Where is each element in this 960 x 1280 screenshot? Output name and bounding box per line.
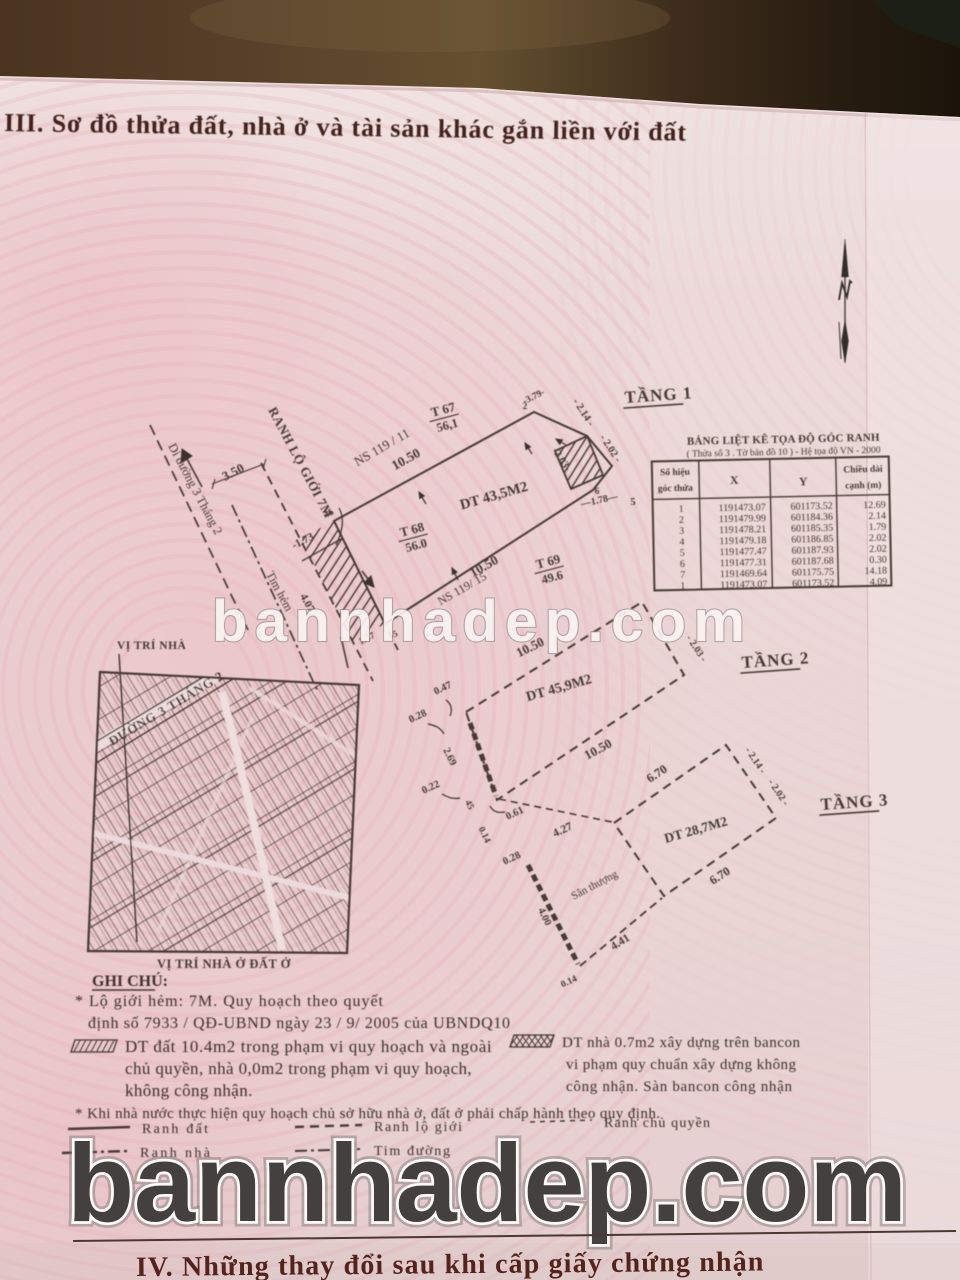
- svg-text:IV. Những thay đổi sau khi cấp: IV. Những thay đổi sau khi cấp giấy chứn…: [136, 1247, 764, 1280]
- svg-text:601173.52: 601173.52: [790, 501, 832, 513]
- svg-text:601175.75: 601175.75: [792, 567, 834, 579]
- svg-text:601185.35: 601185.35: [791, 523, 833, 535]
- svg-text:vi phạm quy chuẩn xây dựng kh: vi phạm quy chuẩn xây dựng không: [566, 1057, 797, 1073]
- svg-text:Chiều dài: Chiều dài: [843, 464, 883, 476]
- svg-text:DT nhà 0.7m2 xây dựng trên ban: DT nhà 0.7m2 xây dựng trên bancon: [562, 1035, 801, 1051]
- svg-text:cạnh (m): cạnh (m): [845, 480, 881, 492]
- svg-text:Y: Y: [799, 476, 808, 488]
- svg-text:4: 4: [679, 537, 684, 548]
- svg-text:601186.85: 601186.85: [791, 534, 833, 546]
- svg-text:2.02: 2.02: [869, 544, 887, 555]
- svg-text:VỊ TRÍ NHÀ: VỊ TRÍ NHÀ: [117, 638, 187, 652]
- svg-text:X: X: [730, 475, 739, 487]
- svg-text:601184.36: 601184.36: [791, 512, 833, 524]
- svg-text:1: 1: [679, 504, 684, 515]
- svg-text:2.14: 2.14: [868, 511, 886, 522]
- svg-text:* Lộ giới hẻm: 7M. Quy hoạch t: * Lộ giới hẻm: 7M. Quy hoạch theo quyết: [75, 993, 384, 1010]
- svg-text:góc thửa: góc thửa: [658, 484, 693, 495]
- svg-text:5: 5: [630, 497, 635, 508]
- svg-text:DT đất 10.4m2 trong phạm vi qu: DT đất 10.4m2 trong phạm vi quy hoạch và…: [125, 1037, 492, 1056]
- svg-text:công nhận. Sàn bancon công nhậ: công nhận. Sàn bancon công nhận: [566, 1079, 793, 1095]
- svg-text:không công nhận.: không công nhận.: [125, 1081, 253, 1100]
- svg-text:2.02: 2.02: [869, 533, 887, 544]
- svg-text:1.79: 1.79: [869, 522, 887, 533]
- svg-text:5: 5: [680, 548, 685, 559]
- svg-text:0.30: 0.30: [869, 555, 887, 566]
- svg-text:601187.68: 601187.68: [792, 556, 834, 568]
- svg-text:* Khi nhà nước thực hiện quy h: * Khi nhà nước thực hiện quy hoạch chủ s…: [75, 1106, 660, 1122]
- svg-text:2: 2: [679, 515, 684, 526]
- svg-text:6: 6: [680, 559, 685, 570]
- svg-text:bannhadep.com: bannhadep.com: [67, 1122, 905, 1245]
- svg-text:6: 6: [595, 487, 600, 497]
- svg-text:định số 7933 / QĐ-UBND ngày 23: định số 7933 / QĐ-UBND ngày 23 / 9/ 2005…: [88, 1015, 510, 1032]
- svg-text:12.69: 12.69: [863, 500, 886, 511]
- svg-text:3: 3: [679, 526, 684, 537]
- svg-text:7: 7: [680, 570, 685, 581]
- svg-text:601173.52: 601173.52: [792, 578, 834, 590]
- svg-text:4.09: 4.09: [870, 577, 888, 588]
- svg-text:Số hiệu: Số hiệu: [660, 467, 691, 479]
- svg-text:GHI CHÚ:: GHI CHÚ:: [92, 971, 168, 990]
- svg-text:VỊ TRÍ NHÀ Ở ĐẤT Ở: VỊ TRÍ NHÀ Ở ĐẤT Ở: [157, 956, 291, 971]
- svg-text:14.18: 14.18: [864, 566, 887, 577]
- svg-text:chủ quyền, nhà 0,0m2 trong phạ: chủ quyền, nhà 0,0m2 trong phạm vi quy h…: [125, 1059, 472, 1078]
- svg-text:2: 2: [523, 401, 528, 411]
- svg-text:601187.93: 601187.93: [791, 545, 833, 557]
